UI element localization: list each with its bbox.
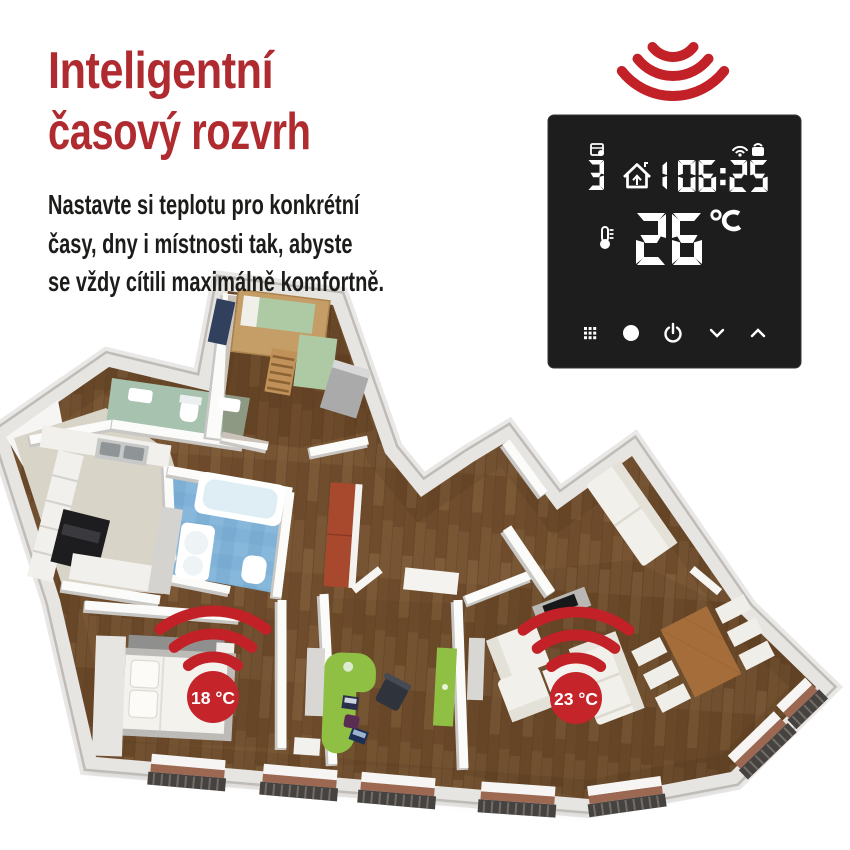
svg-text:23 °C: 23 °C	[554, 689, 598, 709]
svg-text:18 °C: 18 °C	[191, 688, 235, 708]
